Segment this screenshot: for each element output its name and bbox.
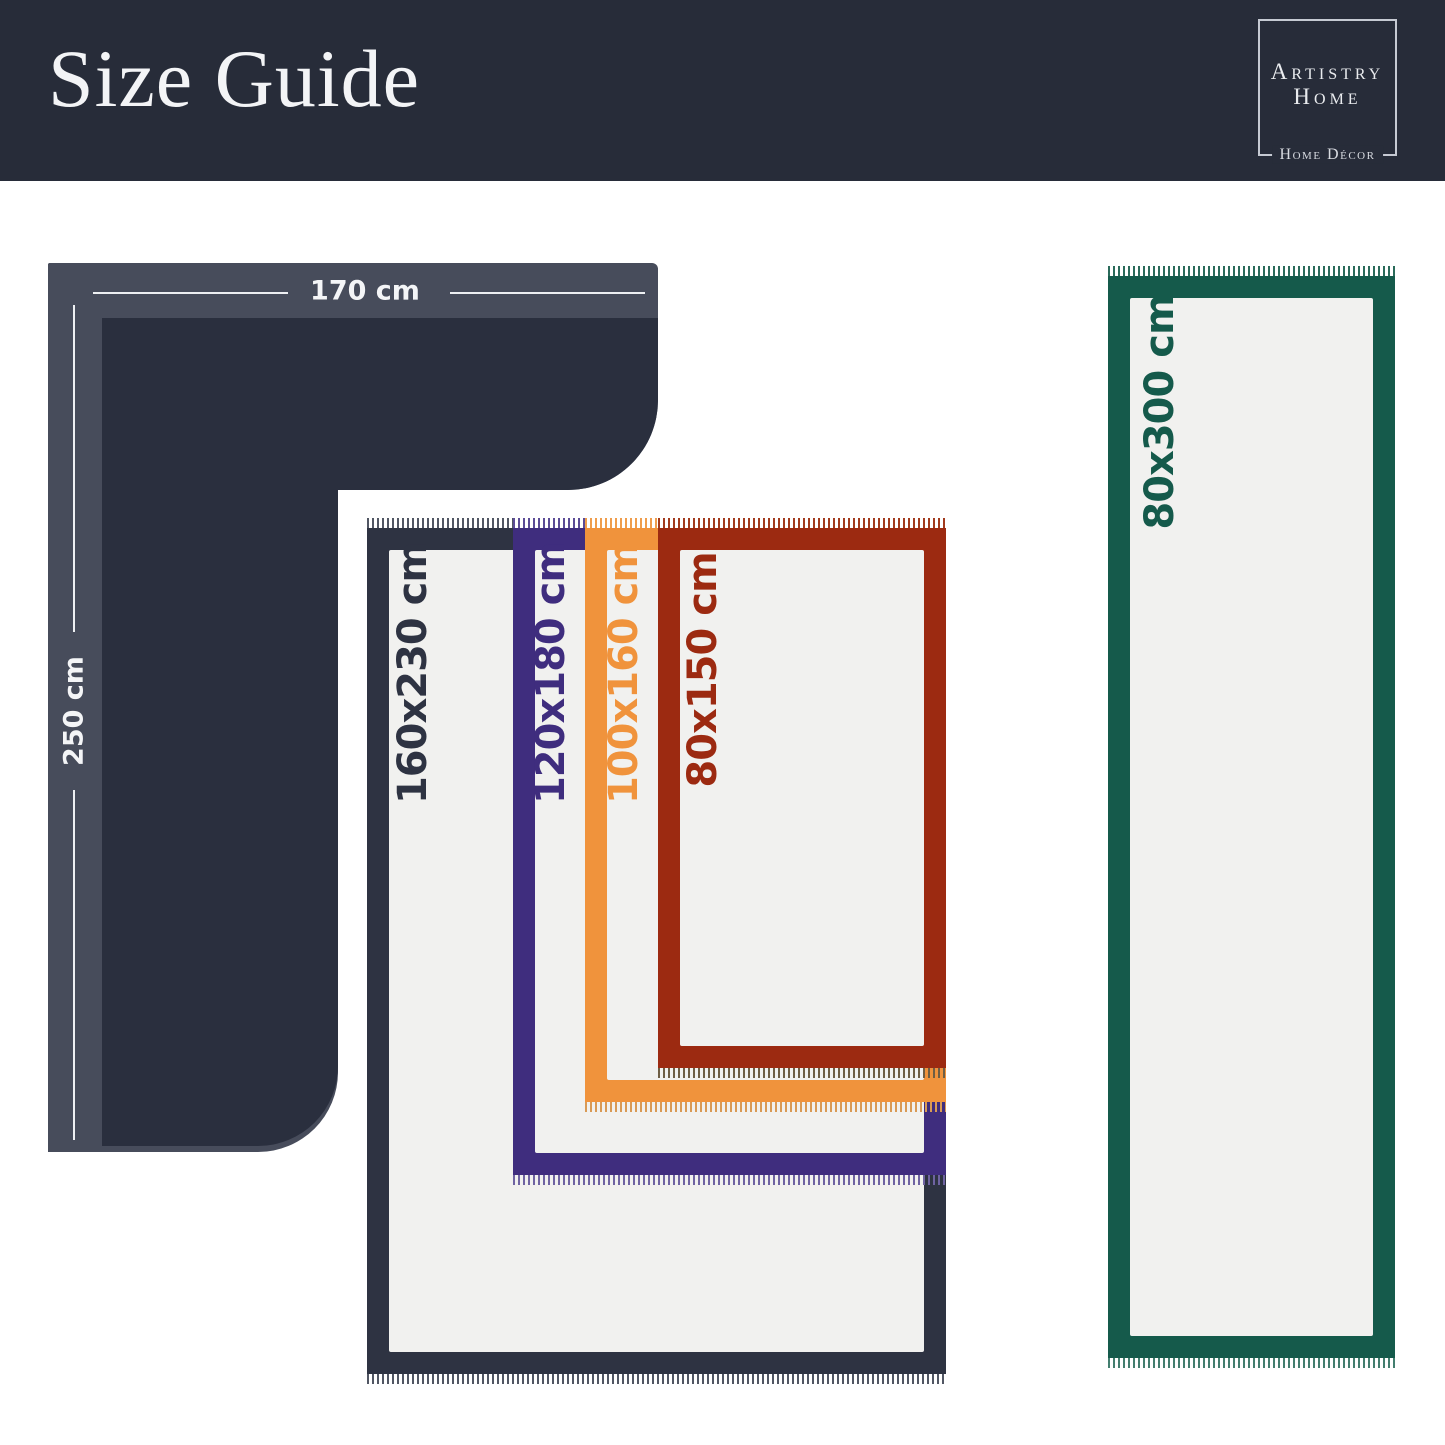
runner-80x300: 80x300 cm <box>1108 276 1395 1358</box>
rug-120x180-bottom-fringe <box>513 1175 946 1185</box>
brand-name-line2: Home <box>1260 84 1395 110</box>
brand-name-line1: Artistry <box>1260 59 1395 84</box>
rug-160x230-size-label: 160x230 cm <box>390 542 436 804</box>
rug-100x160-size-label: 100x160 cm <box>601 542 647 804</box>
page-title: Size Guide <box>48 36 420 122</box>
size-guide-page: Size Guide Artistry Home Home Décor 170 … <box>0 0 1445 1445</box>
brand-tagline: Home Décor <box>1272 146 1384 164</box>
brand-logo: Artistry Home Home Décor <box>1258 19 1397 156</box>
rug-80x150-bottom-fringe <box>658 1068 946 1078</box>
corner-rug-height-label: 250 cm <box>59 656 90 766</box>
height-dimension-line-bottom <box>73 790 75 1140</box>
width-dimension-line-right <box>450 292 645 294</box>
rug-80x150: 80x150 cm <box>658 528 946 1068</box>
corner-rug-width-label: 170 cm <box>310 276 420 307</box>
runner-80x300-size-label: 80x300 cm <box>1137 294 1183 529</box>
width-dimension-line-left <box>93 292 288 294</box>
rug-100x160-bottom-fringe <box>585 1102 946 1112</box>
corner-rug-inner-left-arm <box>102 318 338 1146</box>
rug-80x150-top-fringe <box>658 518 946 528</box>
rug-120x180-size-label: 120x180 cm <box>528 542 574 804</box>
height-dimension-line-top <box>73 305 75 632</box>
header-bar: Size Guide Artistry Home Home Décor <box>0 0 1445 181</box>
rug-80x150-size-label: 80x150 cm <box>680 552 726 787</box>
runner-80x300-top-fringe <box>1108 266 1395 276</box>
rug-160x230-bottom-fringe <box>367 1374 946 1384</box>
runner-80x300-bottom-fringe <box>1108 1358 1395 1368</box>
